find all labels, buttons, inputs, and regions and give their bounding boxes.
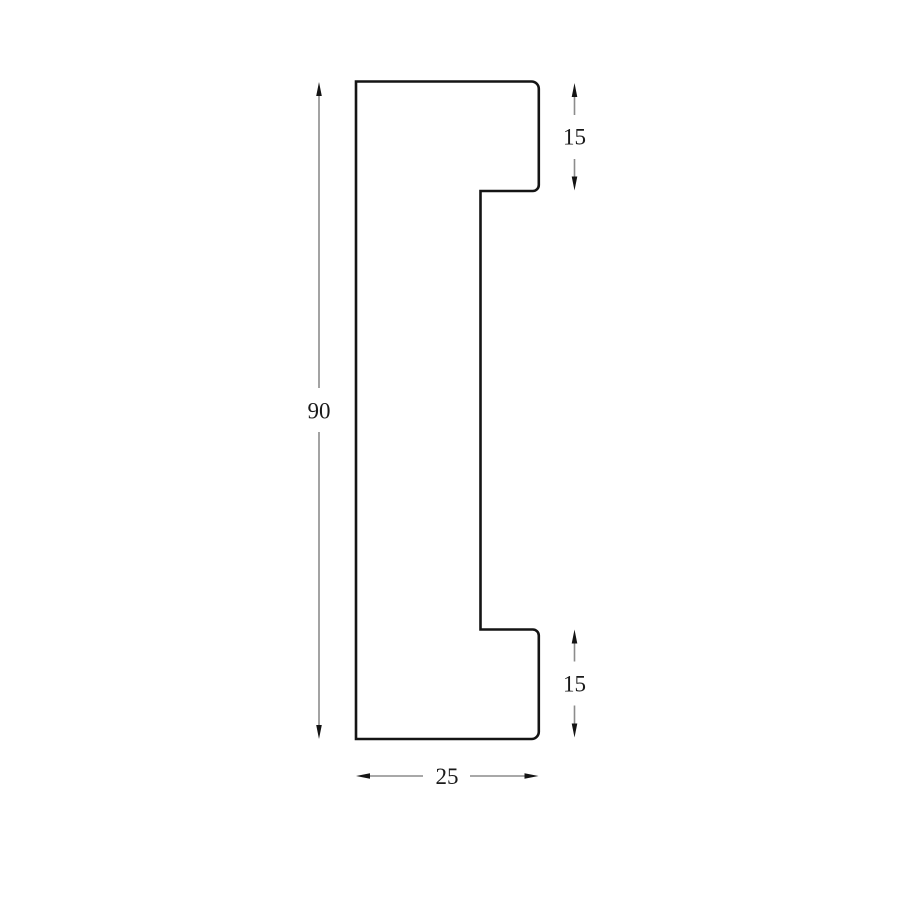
svg-text:25: 25 (436, 764, 459, 789)
svg-text:15: 15 (563, 125, 586, 150)
svg-text:15: 15 (563, 672, 586, 697)
svg-text:90: 90 (308, 399, 331, 424)
